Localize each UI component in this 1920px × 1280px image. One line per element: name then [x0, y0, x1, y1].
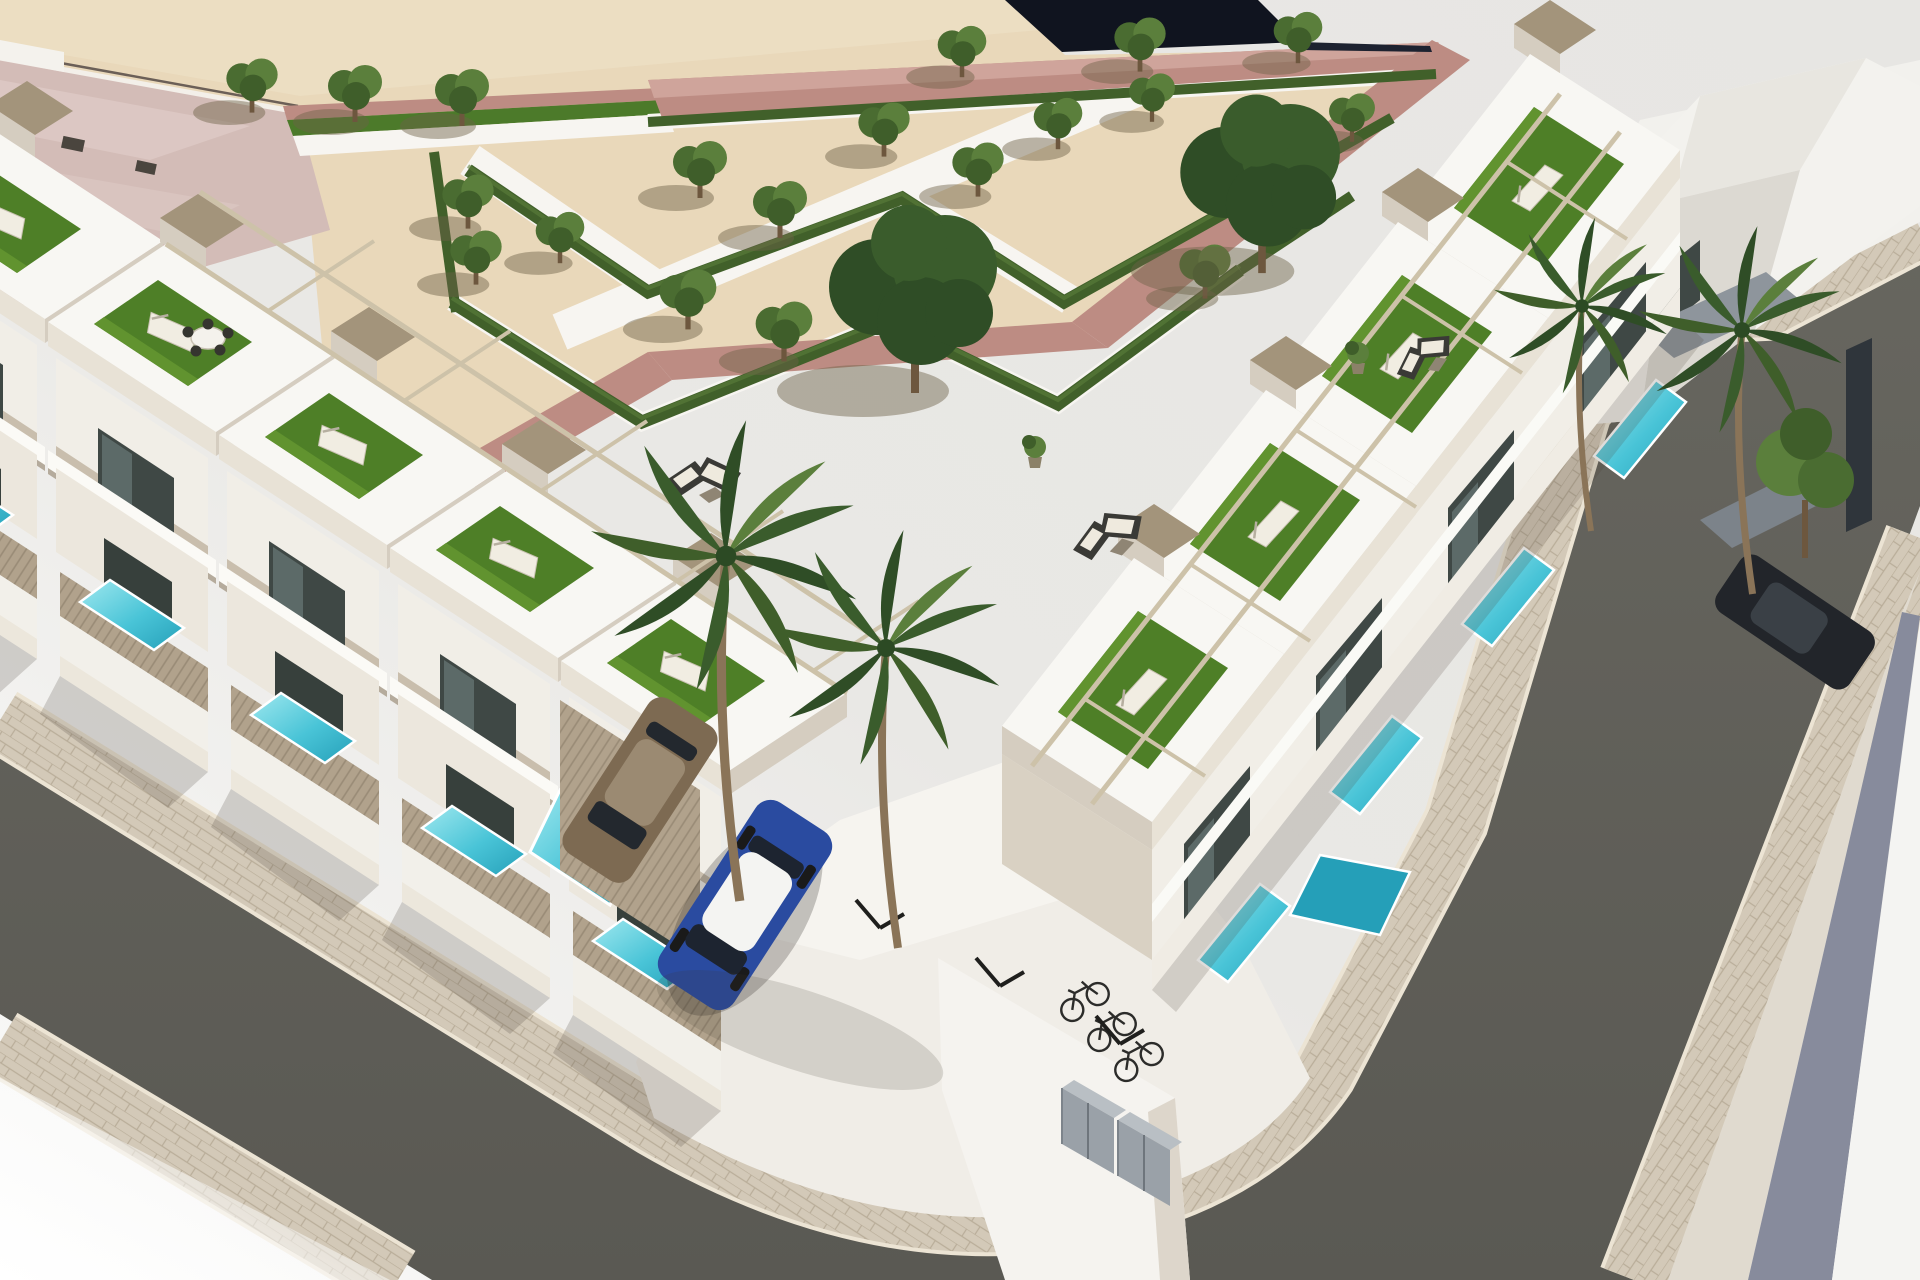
render-canvas [0, 0, 1920, 1280]
render-stage [0, 0, 1920, 1280]
